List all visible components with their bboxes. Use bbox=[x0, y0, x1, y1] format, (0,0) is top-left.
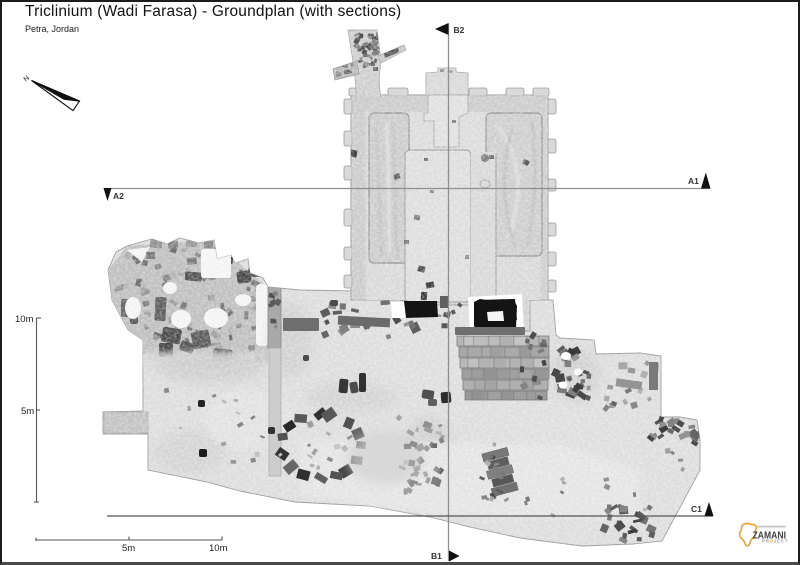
svg-text:A1: A1 bbox=[688, 176, 699, 186]
svg-text:B2: B2 bbox=[454, 25, 465, 35]
svg-text:10m: 10m bbox=[15, 314, 34, 325]
svg-text:C1: C1 bbox=[691, 504, 702, 514]
svg-text:N: N bbox=[23, 75, 31, 84]
svg-text:A2: A2 bbox=[113, 191, 124, 201]
svg-text:PROJECT: PROJECT bbox=[762, 539, 788, 544]
svg-text:B1: B1 bbox=[431, 551, 442, 561]
svg-text:10m: 10m bbox=[209, 543, 228, 554]
svg-text:5m: 5m bbox=[122, 543, 135, 554]
svg-text:5m: 5m bbox=[21, 406, 34, 417]
